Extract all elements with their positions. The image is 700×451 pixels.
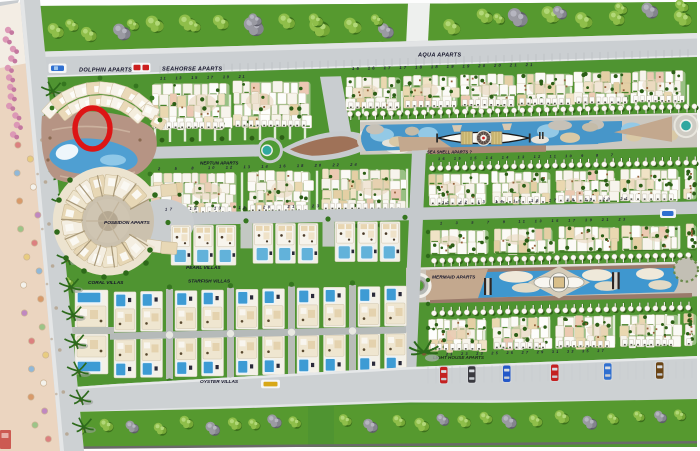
- svg-text:PEARL VILLAS: PEARL VILLAS: [186, 265, 221, 271]
- svg-text:SEAHORSE APARTS: SEAHORSE APARTS: [162, 66, 222, 72]
- svg-text:OYSTER VILLAS: OYSTER VILLAS: [200, 379, 239, 385]
- svg-text:SEA SHELL APARTS ?: SEA SHELL APARTS ?: [427, 149, 472, 154]
- svg-text:STARFISH VILLAS: STARFISH VILLAS: [188, 279, 231, 285]
- svg-text:CORAL VILLAS: CORAL VILLAS: [88, 280, 124, 286]
- svg-text:DOLPHIN APARTS: DOLPHIN APARTS: [79, 68, 132, 74]
- svg-text:POSEIDON APARTS: POSEIDON APARTS: [104, 220, 151, 226]
- svg-text:AQUA APARTS: AQUA APARTS: [417, 53, 461, 59]
- svg-text:LIGHT HOUSE APARTS: LIGHT HOUSE APARTS: [433, 355, 485, 360]
- svg-text:MERMAID APARTS: MERMAID APARTS: [432, 275, 476, 281]
